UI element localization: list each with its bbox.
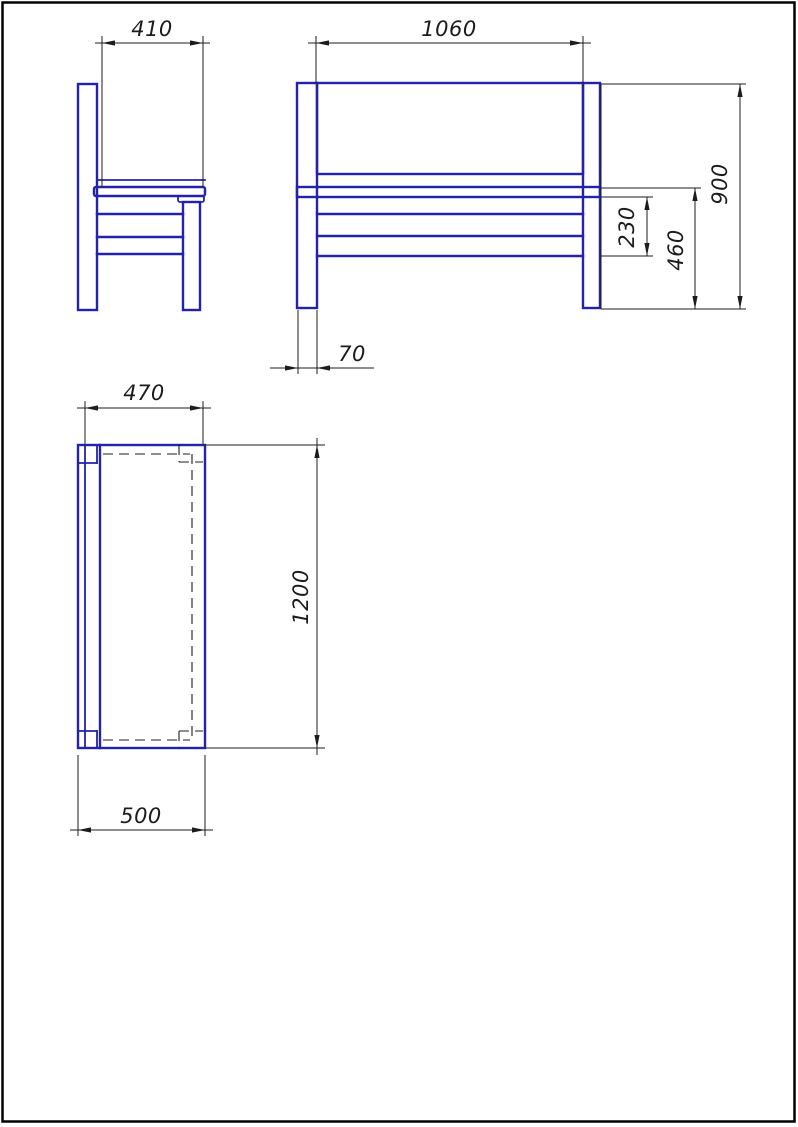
dimension-410: 410 [95,17,210,187]
dim-arrow [78,827,91,832]
dim-arrow [644,243,649,256]
dimension-500: 500 [70,755,213,836]
dim-arrow [737,296,742,309]
dim-arrow [190,40,203,45]
dim-arrow [85,405,98,410]
dim-label-seat-width: 470 [123,381,165,405]
seat-plank-front [297,187,600,197]
dim-label-length: 1200 [289,569,313,624]
dim-label-rail-band-height: 230 [615,206,639,248]
dim-label-overall-depth: 500 [120,804,162,828]
dim-arrow [192,827,205,832]
back-post-side [78,84,97,310]
dimension-1200: 1200 [205,438,325,755]
dim-arrow [692,188,697,201]
dimension-70: 70 [270,310,374,374]
dim-label-overall-height: 900 [708,163,732,205]
top-view: 470 1200 500 [70,381,325,836]
dim-arrow [316,40,329,45]
dim-label-leg-width: 70 [338,342,366,366]
dim-arrow [692,296,697,309]
dim-arrow [190,405,203,410]
dimension-1060: 1060 [308,17,591,83]
right-post-front [583,83,600,308]
dimension-470: 470 [77,381,211,444]
drawing-sheet: 410 1060 900 [0,0,798,1127]
dim-arrow [644,197,649,210]
dim-arrow [570,40,583,45]
dim-arrow [737,84,742,97]
side-view: 410 [78,17,210,310]
sheet-border [3,3,795,1122]
seat-outline-top [78,445,205,748]
front-leg-side [183,202,200,310]
dim-arrow [314,735,319,748]
dim-arrow [314,445,319,458]
dim-arrow [317,365,330,370]
backrest-panel-front [317,83,583,174]
dimension-230: 230 [601,197,653,256]
dim-label-seat-depth: 410 [131,17,173,41]
seat-plank-side [94,187,205,196]
dim-arrow [102,40,115,45]
front-view: 1060 900 460 230 [270,17,746,374]
dim-arrow [285,365,298,370]
dim-label-backrest-span: 1060 [421,17,476,41]
left-post-front [297,83,317,308]
bench-three-view-drawing: 410 1060 900 [0,0,798,1127]
dim-label-seat-height: 460 [664,229,688,271]
